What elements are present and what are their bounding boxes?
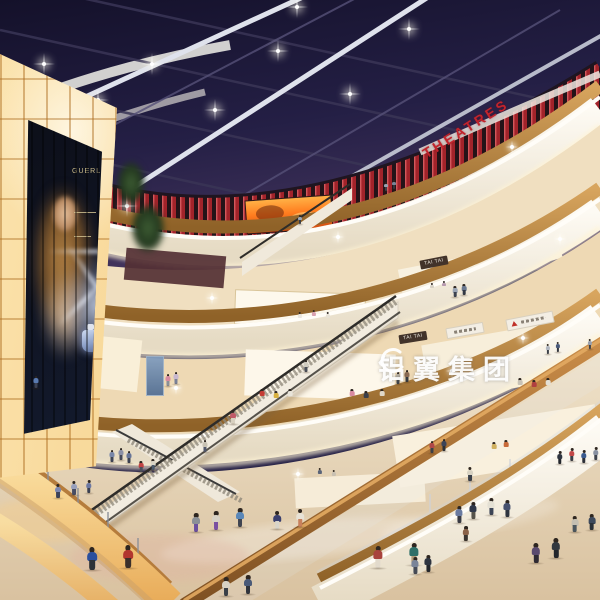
store-sign-text-blur [521, 316, 546, 324]
indoor-plant [116, 160, 146, 206]
person [572, 516, 579, 532]
person [487, 498, 494, 515]
person [532, 543, 540, 563]
shop-mannequin [364, 391, 369, 402]
cove-sparkle [174, 386, 178, 390]
ceiling-spotlight [276, 49, 280, 53]
ceiling-spotlight [407, 27, 411, 31]
shop-mannequin [274, 391, 279, 402]
person [589, 514, 596, 530]
person [556, 342, 560, 352]
person [384, 182, 388, 191]
shop-mannequin [312, 310, 316, 320]
person [244, 575, 252, 594]
ceiling-spotlight [295, 5, 299, 9]
person [463, 526, 469, 541]
person [173, 372, 178, 384]
shop-mannequin [326, 312, 330, 322]
cove-sparkle [296, 472, 300, 476]
shop-mannequin [350, 389, 355, 400]
person [123, 545, 133, 568]
shop-mannequin [318, 468, 322, 478]
cove-sparkle [558, 237, 562, 241]
shop-mannequin [546, 378, 551, 389]
shop-mannequin [288, 389, 293, 400]
person [86, 480, 91, 493]
person [503, 500, 510, 517]
person [569, 448, 574, 461]
store-sign-text-blur [454, 327, 476, 334]
person [557, 451, 562, 464]
person [462, 284, 467, 295]
person [588, 339, 592, 349]
person [467, 467, 473, 481]
cove-sparkle [510, 145, 514, 149]
watermark-logo-icon [378, 348, 404, 378]
person [296, 509, 304, 527]
person [411, 557, 418, 574]
person [109, 450, 114, 462]
ceiling-spotlight [348, 92, 352, 96]
person [118, 448, 123, 460]
person [392, 180, 396, 189]
person [71, 481, 77, 495]
shop-mannequin [492, 442, 497, 453]
indoor-plant [130, 202, 166, 254]
person [455, 506, 462, 523]
person [212, 511, 220, 530]
person [552, 538, 560, 558]
cove-sparkle [210, 296, 214, 300]
person [441, 439, 446, 451]
person [202, 440, 207, 452]
shop-mannequin [298, 312, 302, 322]
ceiling-spotlight [42, 62, 46, 66]
shop-mannequin [260, 389, 265, 400]
mall-atrium-scene: GUERLAIN THEATRES TAI TAI TAI TAI 铝翼集团 [0, 0, 600, 600]
person [303, 360, 308, 372]
shop-mannequin [532, 380, 537, 391]
ceiling-spotlight [213, 108, 217, 112]
person [469, 502, 476, 519]
ceiling-spotlight [150, 62, 154, 66]
person [273, 511, 281, 529]
person [298, 215, 302, 224]
red-triangle-logo-icon [511, 321, 518, 327]
shop-mannequin [442, 281, 446, 290]
person [222, 577, 230, 596]
glass-elevator [146, 356, 164, 396]
person [593, 447, 598, 460]
cove-sparkle [521, 336, 525, 340]
person [546, 344, 550, 354]
person [453, 286, 458, 297]
person [87, 547, 97, 570]
cove-sparkle [336, 235, 340, 239]
person [230, 410, 236, 424]
person [424, 555, 431, 572]
person [373, 546, 382, 568]
shop-mannequin [504, 440, 509, 451]
person [151, 459, 156, 470]
shop-mannequin [518, 378, 523, 389]
person [581, 450, 586, 463]
person [55, 484, 61, 498]
watermark: 铝翼集团 [378, 348, 518, 387]
person [192, 513, 200, 532]
person [429, 441, 434, 453]
person [33, 376, 38, 388]
person [126, 451, 131, 463]
person [236, 508, 244, 527]
shop-mannequin [380, 389, 385, 400]
shop-mannequin [430, 283, 434, 292]
person [139, 461, 144, 472]
shop-mannequin [332, 470, 336, 480]
